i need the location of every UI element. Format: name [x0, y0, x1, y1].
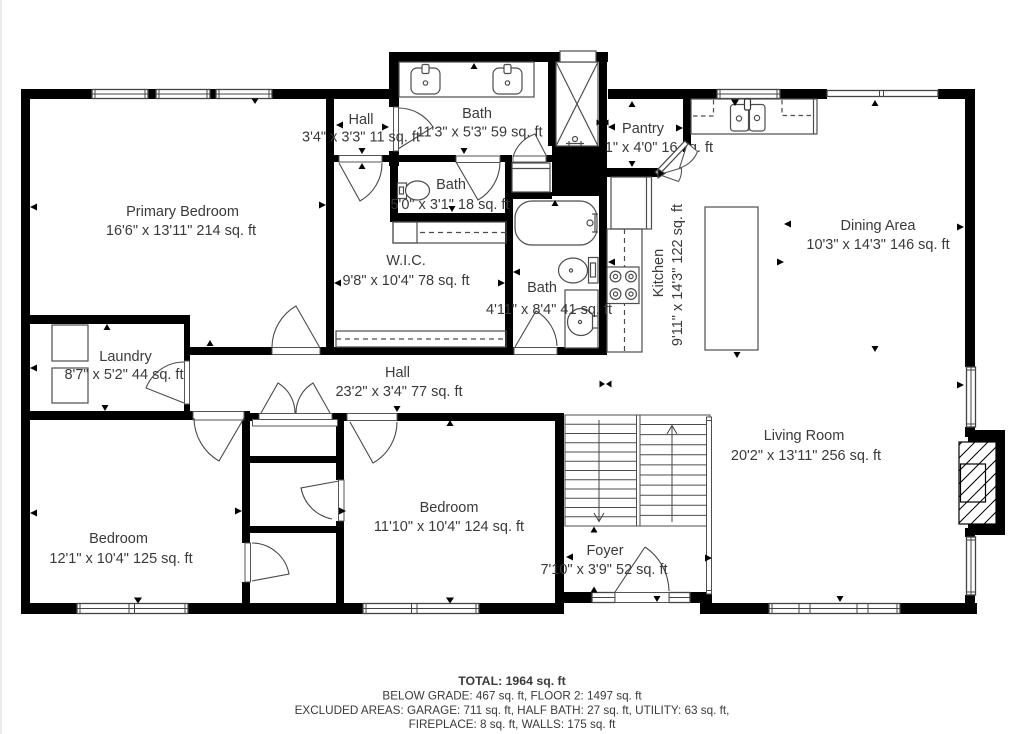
svg-text:Kitchen: Kitchen — [651, 249, 667, 297]
svg-text:Laundry: Laundry — [99, 349, 152, 365]
svg-text:5'0" x 3'1" 18 sq. ft: 5'0" x 3'1" 18 sq. ft — [390, 197, 509, 213]
svg-text:16'6" x 13'11" 214 sq. ft: 16'6" x 13'11" 214 sq. ft — [106, 223, 256, 239]
svg-text:Foyer: Foyer — [586, 543, 623, 559]
svg-text:8'7" x 5'2" 44 sq. ft: 8'7" x 5'2" 44 sq. ft — [64, 367, 183, 383]
svg-text:Hall: Hall — [349, 112, 374, 128]
svg-text:BELOW GRADE: 467 sq. ft, FLOOR: BELOW GRADE: 467 sq. ft, FLOOR 2: 1497 s… — [382, 690, 642, 703]
svg-text:9'8" x 10'4" 78 sq. ft: 9'8" x 10'4" 78 sq. ft — [342, 273, 469, 289]
svg-text:Pantry: Pantry — [622, 121, 665, 137]
svg-text:Bedroom: Bedroom — [89, 531, 148, 547]
svg-text:3'4" x 3'3" 11 sq. ft: 3'4" x 3'3" 11 sq. ft — [302, 130, 420, 146]
svg-text:11'10" x 10'4" 124 sq. ft: 11'10" x 10'4" 124 sq. ft — [374, 519, 524, 535]
svg-text:Bath: Bath — [462, 106, 492, 122]
svg-text:10'3" x 14'3" 146 sq. ft: 10'3" x 14'3" 146 sq. ft — [806, 237, 949, 253]
svg-text:7'10" x 3'9" 52 sq. ft: 7'10" x 3'9" 52 sq. ft — [540, 562, 667, 578]
svg-text:Bedroom: Bedroom — [420, 500, 479, 516]
svg-text:FIREPLACE: 8 sq. ft, WALLS: 17: FIREPLACE: 8 sq. ft, WALLS: 175 sq. ft — [409, 718, 617, 731]
svg-text:12'1" x 10'4" 125 sq. ft: 12'1" x 10'4" 125 sq. ft — [49, 551, 192, 567]
svg-text:23'2" x 3'4" 77 sq. ft: 23'2" x 3'4" 77 sq. ft — [335, 384, 462, 400]
svg-text:Living Room: Living Room — [764, 428, 845, 444]
svg-text:Primary Bedroom: Primary Bedroom — [126, 204, 239, 220]
svg-text:Dining Area: Dining Area — [841, 218, 917, 234]
svg-text:Bath: Bath — [436, 177, 466, 193]
svg-text:TOTAL: 1964 sq. ft: TOTAL: 1964 sq. ft — [458, 674, 566, 688]
svg-text:W.I.C.: W.I.C. — [386, 253, 425, 269]
svg-text:9'11" x 14'3" 122 sq. ft: 9'11" x 14'3" 122 sq. ft — [670, 204, 686, 346]
svg-text:Hall: Hall — [385, 365, 410, 381]
svg-text:20'2" x 13'11" 256 sq. ft: 20'2" x 13'11" 256 sq. ft — [731, 448, 881, 464]
svg-text:Bath: Bath — [527, 280, 557, 296]
svg-text:11'3" x 5'3" 59 sq. ft: 11'3" x 5'3" 59 sq. ft — [417, 125, 543, 141]
svg-text:EXCLUDED AREAS: GARAGE: 711 sq: EXCLUDED AREAS: GARAGE: 711 sq. ft, HALF… — [295, 704, 730, 717]
svg-text:4'11" x 8'4" 41 sq. ft: 4'11" x 8'4" 41 sq. ft — [486, 302, 612, 318]
